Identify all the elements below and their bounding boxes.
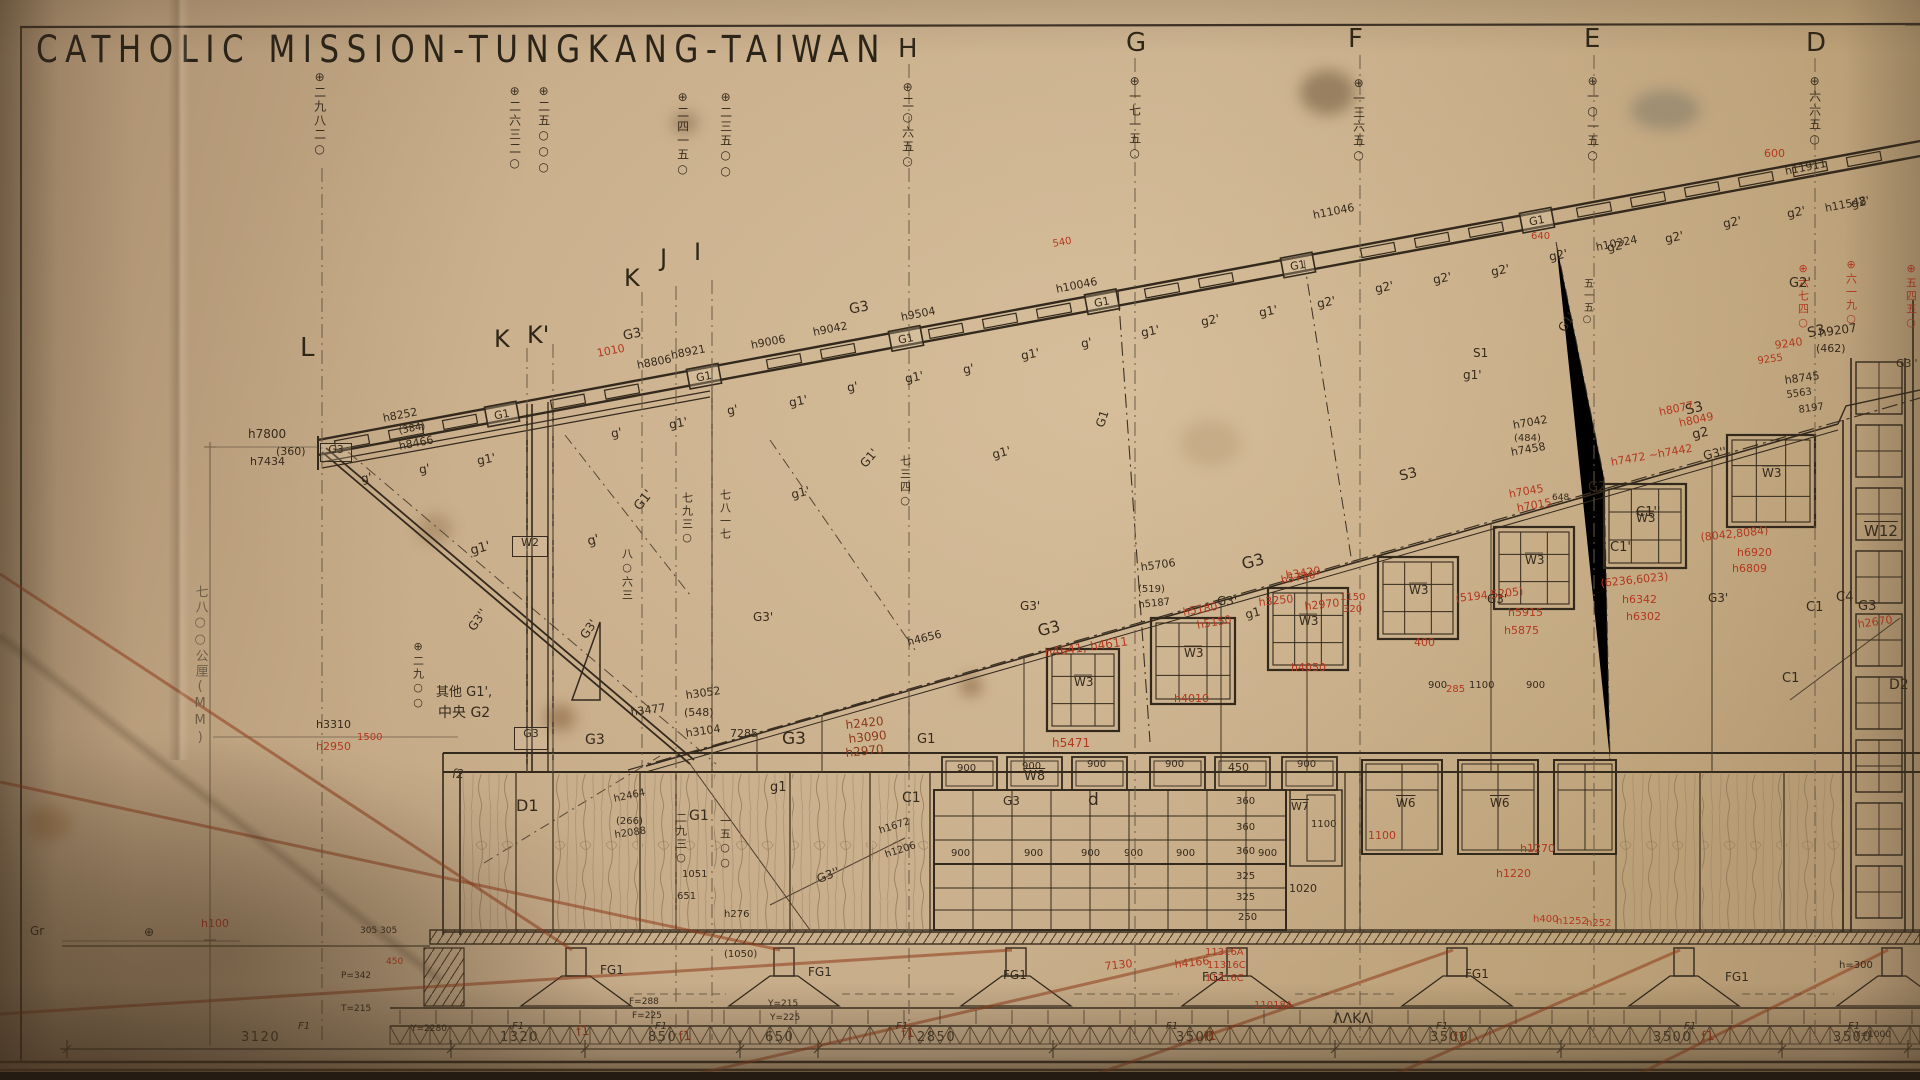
annotation: g2' bbox=[1850, 195, 1871, 210]
annotation: C1'' bbox=[1636, 506, 1661, 519]
annotation: 七九三○ bbox=[681, 492, 693, 546]
annotation: f1 bbox=[576, 1025, 590, 1039]
annotation: 7285 bbox=[730, 728, 758, 739]
annotation: G3 bbox=[848, 299, 870, 317]
annotation: g' bbox=[610, 426, 623, 440]
annotation: 1100 bbox=[1368, 830, 1396, 841]
annotation: g2' bbox=[1316, 295, 1337, 310]
annotation: g' bbox=[846, 380, 859, 394]
annotation: 3500 bbox=[1653, 1031, 1692, 1044]
photo-bottom-edge bbox=[0, 1072, 1920, 1080]
annotation: g' bbox=[418, 462, 431, 476]
svg-text:W3: W3 bbox=[1299, 614, 1319, 628]
annotation: 七八○○公厘(MM) bbox=[193, 585, 207, 747]
annotation: ⊕二六三二○ bbox=[508, 84, 521, 172]
annotation: F bbox=[1348, 26, 1363, 52]
annotation: f2 bbox=[452, 768, 464, 780]
annotation: 11018A bbox=[1254, 1001, 1293, 1011]
annotation: 900 bbox=[951, 849, 970, 859]
annotation: F1 bbox=[298, 1022, 310, 1032]
annotation: h2970 bbox=[1304, 597, 1340, 612]
annotation: W12 bbox=[1864, 524, 1898, 539]
annotation: h3310 bbox=[316, 719, 351, 730]
annotation: g2' bbox=[1606, 238, 1627, 253]
annotation: ⊕六一九○ bbox=[1845, 258, 1857, 327]
annotation: 650 bbox=[765, 1031, 794, 1044]
annotation: G1 bbox=[917, 733, 935, 746]
annotation: 648 bbox=[1552, 494, 1569, 503]
annotation: 325 bbox=[1236, 893, 1255, 903]
annotation: h3250 bbox=[1258, 593, 1294, 608]
annotation: g1' bbox=[1258, 303, 1279, 318]
annotation: g2' bbox=[1664, 229, 1685, 244]
annotation: g1' bbox=[788, 393, 809, 408]
annotation: g2' bbox=[1432, 271, 1453, 286]
annotation: 305 305 bbox=[360, 927, 397, 936]
annotation: 450 bbox=[1228, 762, 1249, 773]
annotation: FG1 bbox=[1725, 971, 1749, 983]
annotation: 360 bbox=[1236, 797, 1255, 807]
annotation: ⊕六六五○ bbox=[1808, 74, 1821, 148]
annotation: (462) bbox=[1816, 343, 1846, 354]
annotation: g' bbox=[726, 403, 739, 417]
annotation: 900 bbox=[1081, 849, 1100, 859]
annotation: E bbox=[1584, 26, 1600, 52]
annotation: K bbox=[624, 266, 640, 290]
annotation: (1050) bbox=[724, 950, 757, 960]
annotation: g2' bbox=[1722, 215, 1743, 230]
annotation: S3 bbox=[1398, 466, 1419, 484]
annotation: 11216C bbox=[1205, 974, 1244, 984]
annotation: G3' bbox=[1217, 595, 1237, 607]
annotation: 1320 bbox=[500, 1031, 539, 1044]
annotation: 7130 bbox=[1104, 958, 1133, 972]
annotation: 250 bbox=[1238, 913, 1257, 923]
annotation: 325 bbox=[1236, 872, 1255, 882]
annotation: h=300 bbox=[1839, 961, 1873, 971]
annotation: G3 bbox=[1858, 600, 1876, 613]
annotation: ΛΛΚΛ bbox=[1333, 1012, 1371, 1026]
annotation: G3 bbox=[1003, 795, 1020, 807]
annotation: 850 bbox=[648, 1031, 677, 1044]
annotation: h252 bbox=[1586, 919, 1611, 929]
annotation: G3 bbox=[782, 731, 806, 748]
annotation: K bbox=[494, 327, 510, 351]
annotation: G3'' bbox=[1896, 358, 1918, 369]
annotation: 八○六三 bbox=[621, 548, 633, 602]
annotation: h276 bbox=[724, 910, 749, 920]
annotation: 中央 G2 bbox=[438, 706, 490, 720]
annotation: 360 bbox=[1236, 823, 1255, 833]
annotation: 11316A bbox=[1205, 948, 1244, 958]
annotation: g1 bbox=[770, 781, 787, 794]
annotation: f1 bbox=[678, 1030, 692, 1044]
annotation: 1100 bbox=[1469, 681, 1494, 691]
annotation: W8 bbox=[1024, 770, 1045, 783]
drawing-sheet: CATHOLIC MISSION-TUNGKANG-TAIWAN bbox=[0, 0, 1920, 1080]
boxed-label: G3 bbox=[320, 443, 352, 462]
annotation: 900 bbox=[1258, 849, 1277, 859]
annotation: 900 bbox=[1087, 760, 1106, 770]
annotation: g2 bbox=[1691, 426, 1710, 442]
annotation: 2850 bbox=[917, 1031, 956, 1044]
annotation: 其他 G1', bbox=[436, 686, 492, 699]
svg-text:W3: W3 bbox=[1762, 466, 1782, 480]
annotation: C1 bbox=[1782, 672, 1799, 685]
annotation: G3 bbox=[585, 733, 605, 747]
annotation: ⊕一○一五○ bbox=[1586, 74, 1599, 164]
annotation: h6342 bbox=[1622, 594, 1657, 605]
annotation: 900 bbox=[1124, 849, 1143, 859]
annotation: d bbox=[1088, 792, 1099, 809]
annotation: ⊕二○六五○ bbox=[901, 80, 914, 170]
annotation: F=288 bbox=[629, 998, 659, 1007]
annotation: h6920 bbox=[1737, 547, 1772, 558]
annotation: g1' bbox=[904, 370, 925, 385]
annotation: f1 bbox=[1701, 1030, 1715, 1044]
svg-text:W3: W3 bbox=[1184, 646, 1204, 660]
annotation: 900 bbox=[1297, 760, 1316, 770]
annotation: g2' bbox=[1490, 262, 1511, 277]
annotation: f1 bbox=[901, 1027, 915, 1041]
annotation: F=225 bbox=[632, 1012, 662, 1021]
annotation: g1' bbox=[1463, 369, 1482, 381]
annotation: ⊕一三六五○ bbox=[1352, 76, 1365, 164]
annotation: D bbox=[1806, 30, 1826, 56]
annotation: h7434 bbox=[250, 456, 285, 467]
annotation: H bbox=[898, 36, 918, 62]
annotation: 五一五○ bbox=[1581, 278, 1592, 327]
annotation: g' bbox=[1080, 336, 1093, 350]
annotation: FG1 bbox=[1003, 969, 1027, 981]
annotation: ⊕ bbox=[144, 926, 154, 938]
annotation: h5471 bbox=[1052, 737, 1090, 749]
svg-text:W3: W3 bbox=[1409, 583, 1429, 597]
annotation: ⊕五四五○ bbox=[1905, 262, 1917, 331]
annotation: G3' bbox=[1708, 592, 1728, 604]
annotation: g' bbox=[962, 362, 975, 376]
annotation: f1 bbox=[1203, 1030, 1217, 1044]
annotation: h1220 bbox=[1496, 868, 1531, 879]
annotation: 900 bbox=[1024, 849, 1043, 859]
annotation: h5915 bbox=[1508, 607, 1543, 618]
annotation: h6809 bbox=[1732, 563, 1767, 574]
annotation: D2 bbox=[1889, 678, 1909, 692]
annotation: h4010 bbox=[1174, 693, 1209, 704]
annotation: 3500 bbox=[1833, 1031, 1872, 1044]
svg-text:W3: W3 bbox=[1074, 675, 1094, 689]
annotation: 二九三○ bbox=[675, 812, 687, 866]
annotation: h2950 bbox=[316, 741, 351, 752]
annotation: h4050 bbox=[1291, 662, 1326, 673]
annotation: g2' bbox=[1200, 312, 1221, 327]
annotation: 1150 bbox=[1340, 593, 1365, 603]
annotation: g1' bbox=[1020, 346, 1041, 361]
annotation: Y=2280 bbox=[411, 1025, 447, 1034]
annotation: ⊕二五○○○ bbox=[537, 84, 550, 176]
annotation: D1 bbox=[516, 798, 539, 814]
annotation: 600 bbox=[1764, 148, 1785, 159]
annotation: ⊕二九○○ bbox=[412, 640, 424, 711]
annotation: g2' bbox=[1548, 247, 1569, 262]
annotation: (548) bbox=[684, 707, 714, 718]
annotation: 一五○○ bbox=[719, 815, 731, 871]
annotation: 1500 bbox=[357, 733, 382, 743]
annotation: f1 bbox=[1453, 1031, 1467, 1045]
annotation: C4 bbox=[1836, 591, 1853, 604]
annotation: Y=215 bbox=[768, 1000, 798, 1009]
annotation: 320 bbox=[1343, 605, 1362, 615]
annotation: (519) bbox=[1138, 585, 1165, 595]
annotation: P=342 bbox=[341, 972, 371, 981]
annotation: 1051 bbox=[682, 870, 707, 880]
annotation: h6302 bbox=[1626, 611, 1661, 622]
annotation: G3' bbox=[1020, 600, 1040, 612]
annotation: ⊕二九八二○ bbox=[313, 70, 326, 158]
annotation: 900 bbox=[1176, 849, 1195, 859]
annotation: 450 bbox=[386, 958, 403, 967]
annotation: h400 bbox=[1533, 915, 1558, 925]
annotation: g2' bbox=[1374, 280, 1395, 295]
annotation: h1270 bbox=[1520, 843, 1555, 854]
annotation: h5875 bbox=[1504, 625, 1539, 636]
annotation: g1' bbox=[1140, 324, 1161, 339]
annotation: W6 bbox=[1396, 797, 1416, 809]
section-drawing-linework: G1G1G1G1G1G1W3W3W3W3W3W3W3 bbox=[0, 0, 1920, 1080]
annotation: 360 bbox=[1236, 847, 1255, 857]
annotation: G2' bbox=[1789, 277, 1811, 290]
annotation: 900 bbox=[1165, 760, 1184, 770]
annotation: 400 bbox=[1414, 637, 1435, 648]
annotation: FG1 bbox=[808, 966, 832, 978]
annotation: h7800 bbox=[248, 428, 286, 440]
annotation: G1 bbox=[689, 809, 709, 823]
annotation: h2970 bbox=[845, 743, 884, 759]
annotation: 七三四○ bbox=[899, 455, 911, 509]
annotation: g2' bbox=[1786, 205, 1807, 220]
annotation: h1252 bbox=[1556, 917, 1588, 927]
annotation: 七八一七 bbox=[719, 489, 731, 541]
annotation: L bbox=[300, 335, 315, 361]
annotation: J bbox=[660, 246, 667, 270]
annotation: FG1 bbox=[600, 964, 624, 976]
annotation: W6 bbox=[1490, 797, 1510, 809]
annotation: 11316C bbox=[1207, 961, 1246, 971]
annotation: C1 bbox=[1806, 601, 1823, 614]
annotation: ⊕六七四○ bbox=[1797, 262, 1809, 331]
annotation: 900 bbox=[957, 764, 976, 774]
annotation: ⊕二四一五○ bbox=[676, 90, 689, 178]
annotation: g' bbox=[360, 471, 373, 485]
annotation: C1 bbox=[902, 791, 921, 805]
boxed-label: G3 bbox=[514, 727, 548, 750]
boxed-label: W2 bbox=[512, 536, 548, 557]
annotation: G3 bbox=[622, 326, 643, 342]
sheet-bottom-shadow bbox=[0, 1056, 1920, 1072]
annotation: FG1 bbox=[1465, 968, 1489, 980]
annotation: 651 bbox=[677, 892, 696, 902]
annotation: W7 bbox=[1291, 801, 1309, 812]
svg-text:W3: W3 bbox=[1525, 553, 1545, 567]
annotation: 640 bbox=[1531, 232, 1550, 242]
annotation: 900 bbox=[1526, 681, 1545, 691]
annotation: T=215 bbox=[341, 1005, 371, 1014]
annotation: ⊕一七一五○ bbox=[1128, 74, 1141, 162]
annotation: G3' bbox=[753, 611, 773, 623]
annotation: I bbox=[694, 240, 701, 264]
annotation: ⊕二三五○○ bbox=[719, 90, 732, 180]
annotation: K' bbox=[527, 323, 549, 347]
annotation: 1100 bbox=[1311, 820, 1336, 830]
annotation: Y=225 bbox=[770, 1014, 800, 1023]
annotation: Gr bbox=[30, 925, 44, 937]
annotation: C1' bbox=[1610, 541, 1631, 554]
annotation: h100 bbox=[201, 918, 229, 929]
annotation: G bbox=[1126, 30, 1146, 56]
annotation: 900 bbox=[1428, 681, 1447, 691]
annotation: 3120 bbox=[241, 1031, 280, 1044]
annotation: G2 bbox=[1588, 481, 1606, 494]
annotation: S1 bbox=[1473, 347, 1488, 359]
annotation: 1020 bbox=[1289, 883, 1317, 894]
annotation: 285 bbox=[1446, 685, 1465, 695]
